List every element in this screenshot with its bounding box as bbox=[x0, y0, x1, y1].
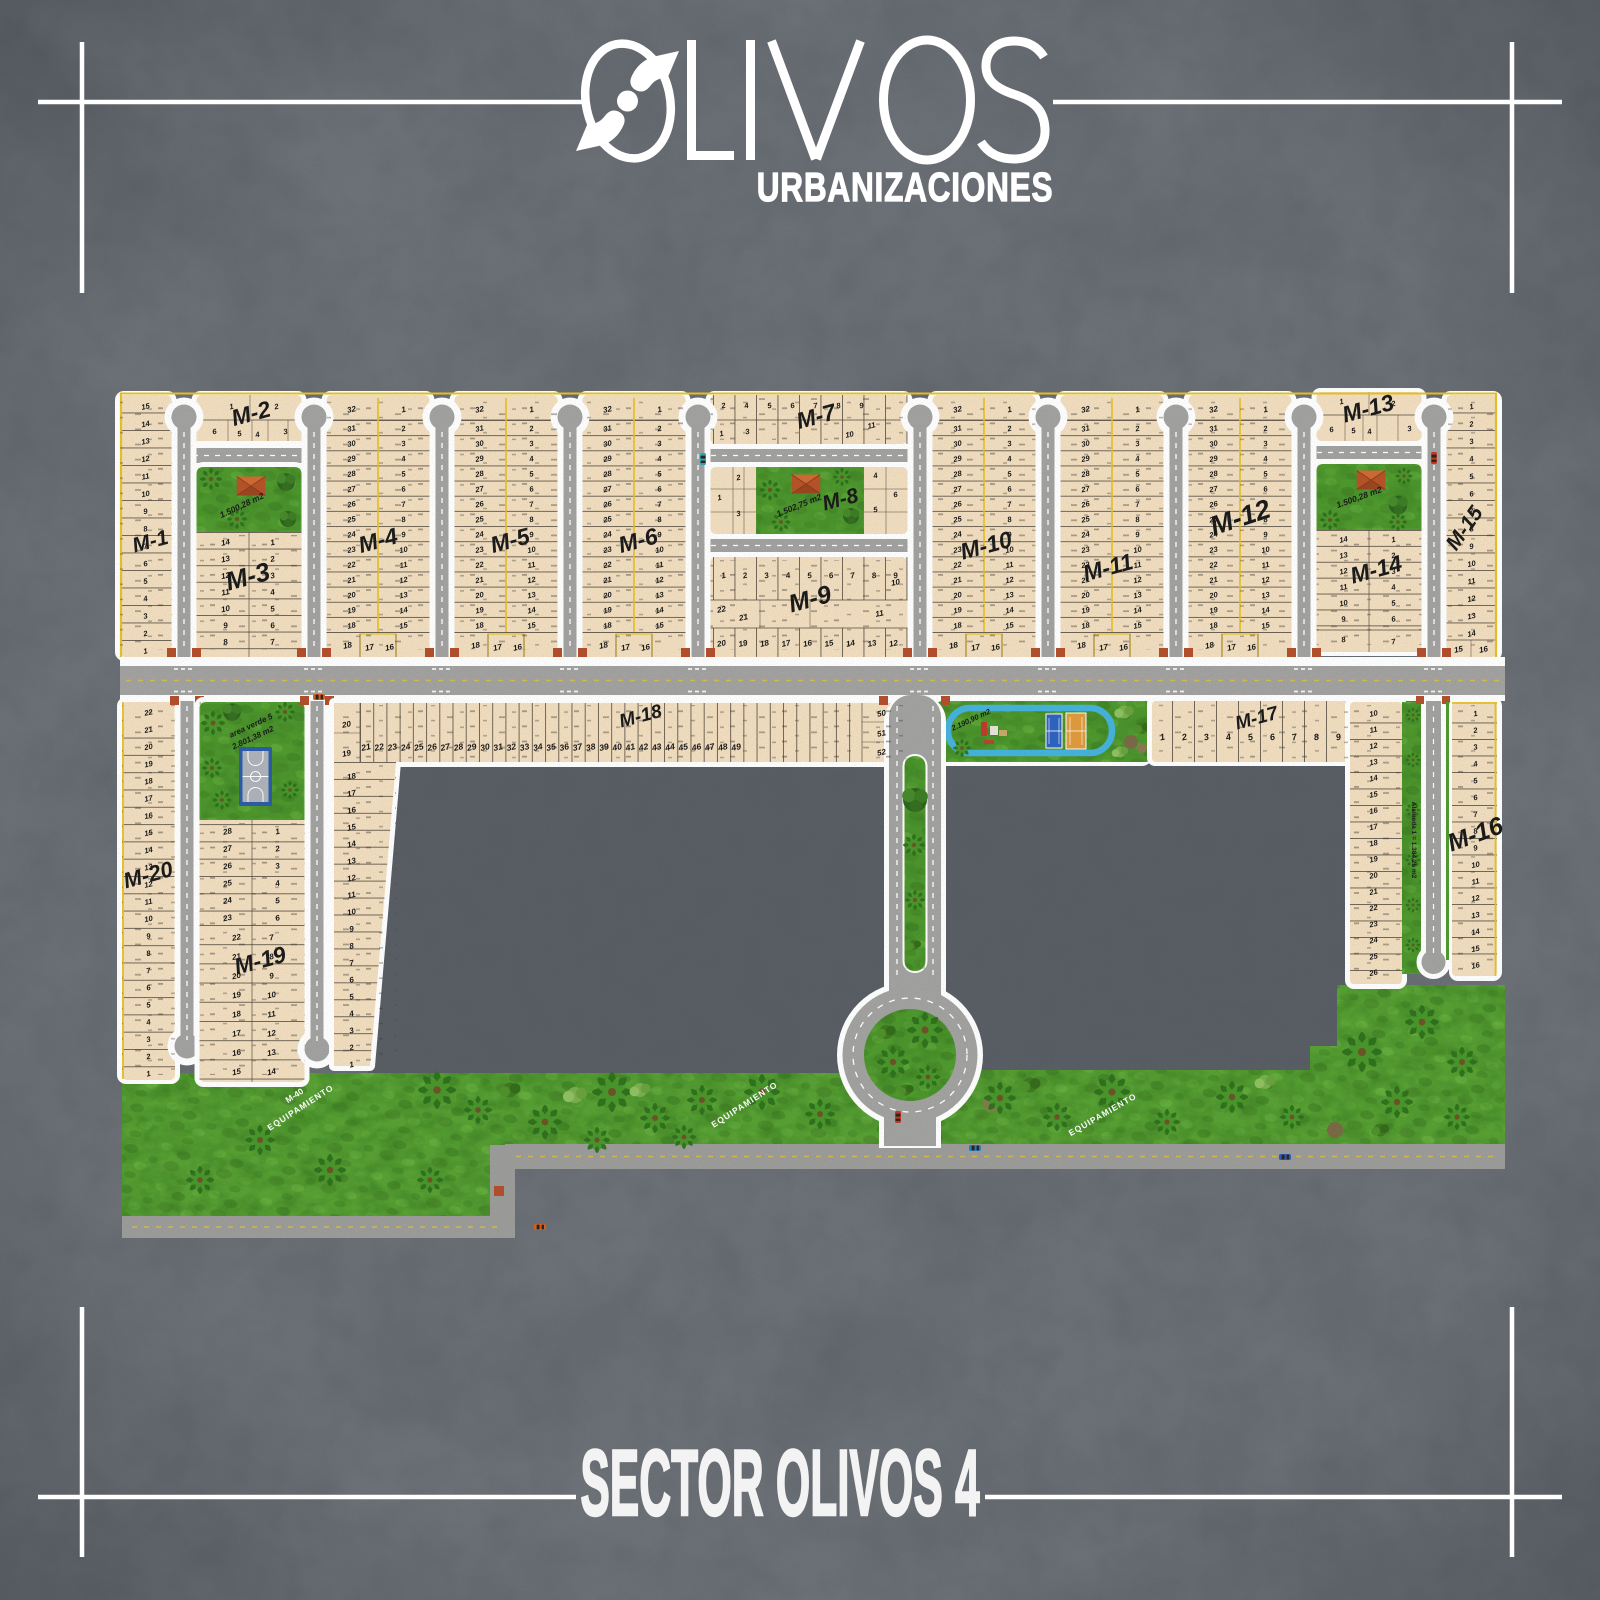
svg-text:SECTOR OLIVOS 4: SECTOR OLIVOS 4 bbox=[580, 1431, 979, 1536]
svg-text:URBANIZACIONES: URBANIZACIONES bbox=[757, 164, 1054, 210]
